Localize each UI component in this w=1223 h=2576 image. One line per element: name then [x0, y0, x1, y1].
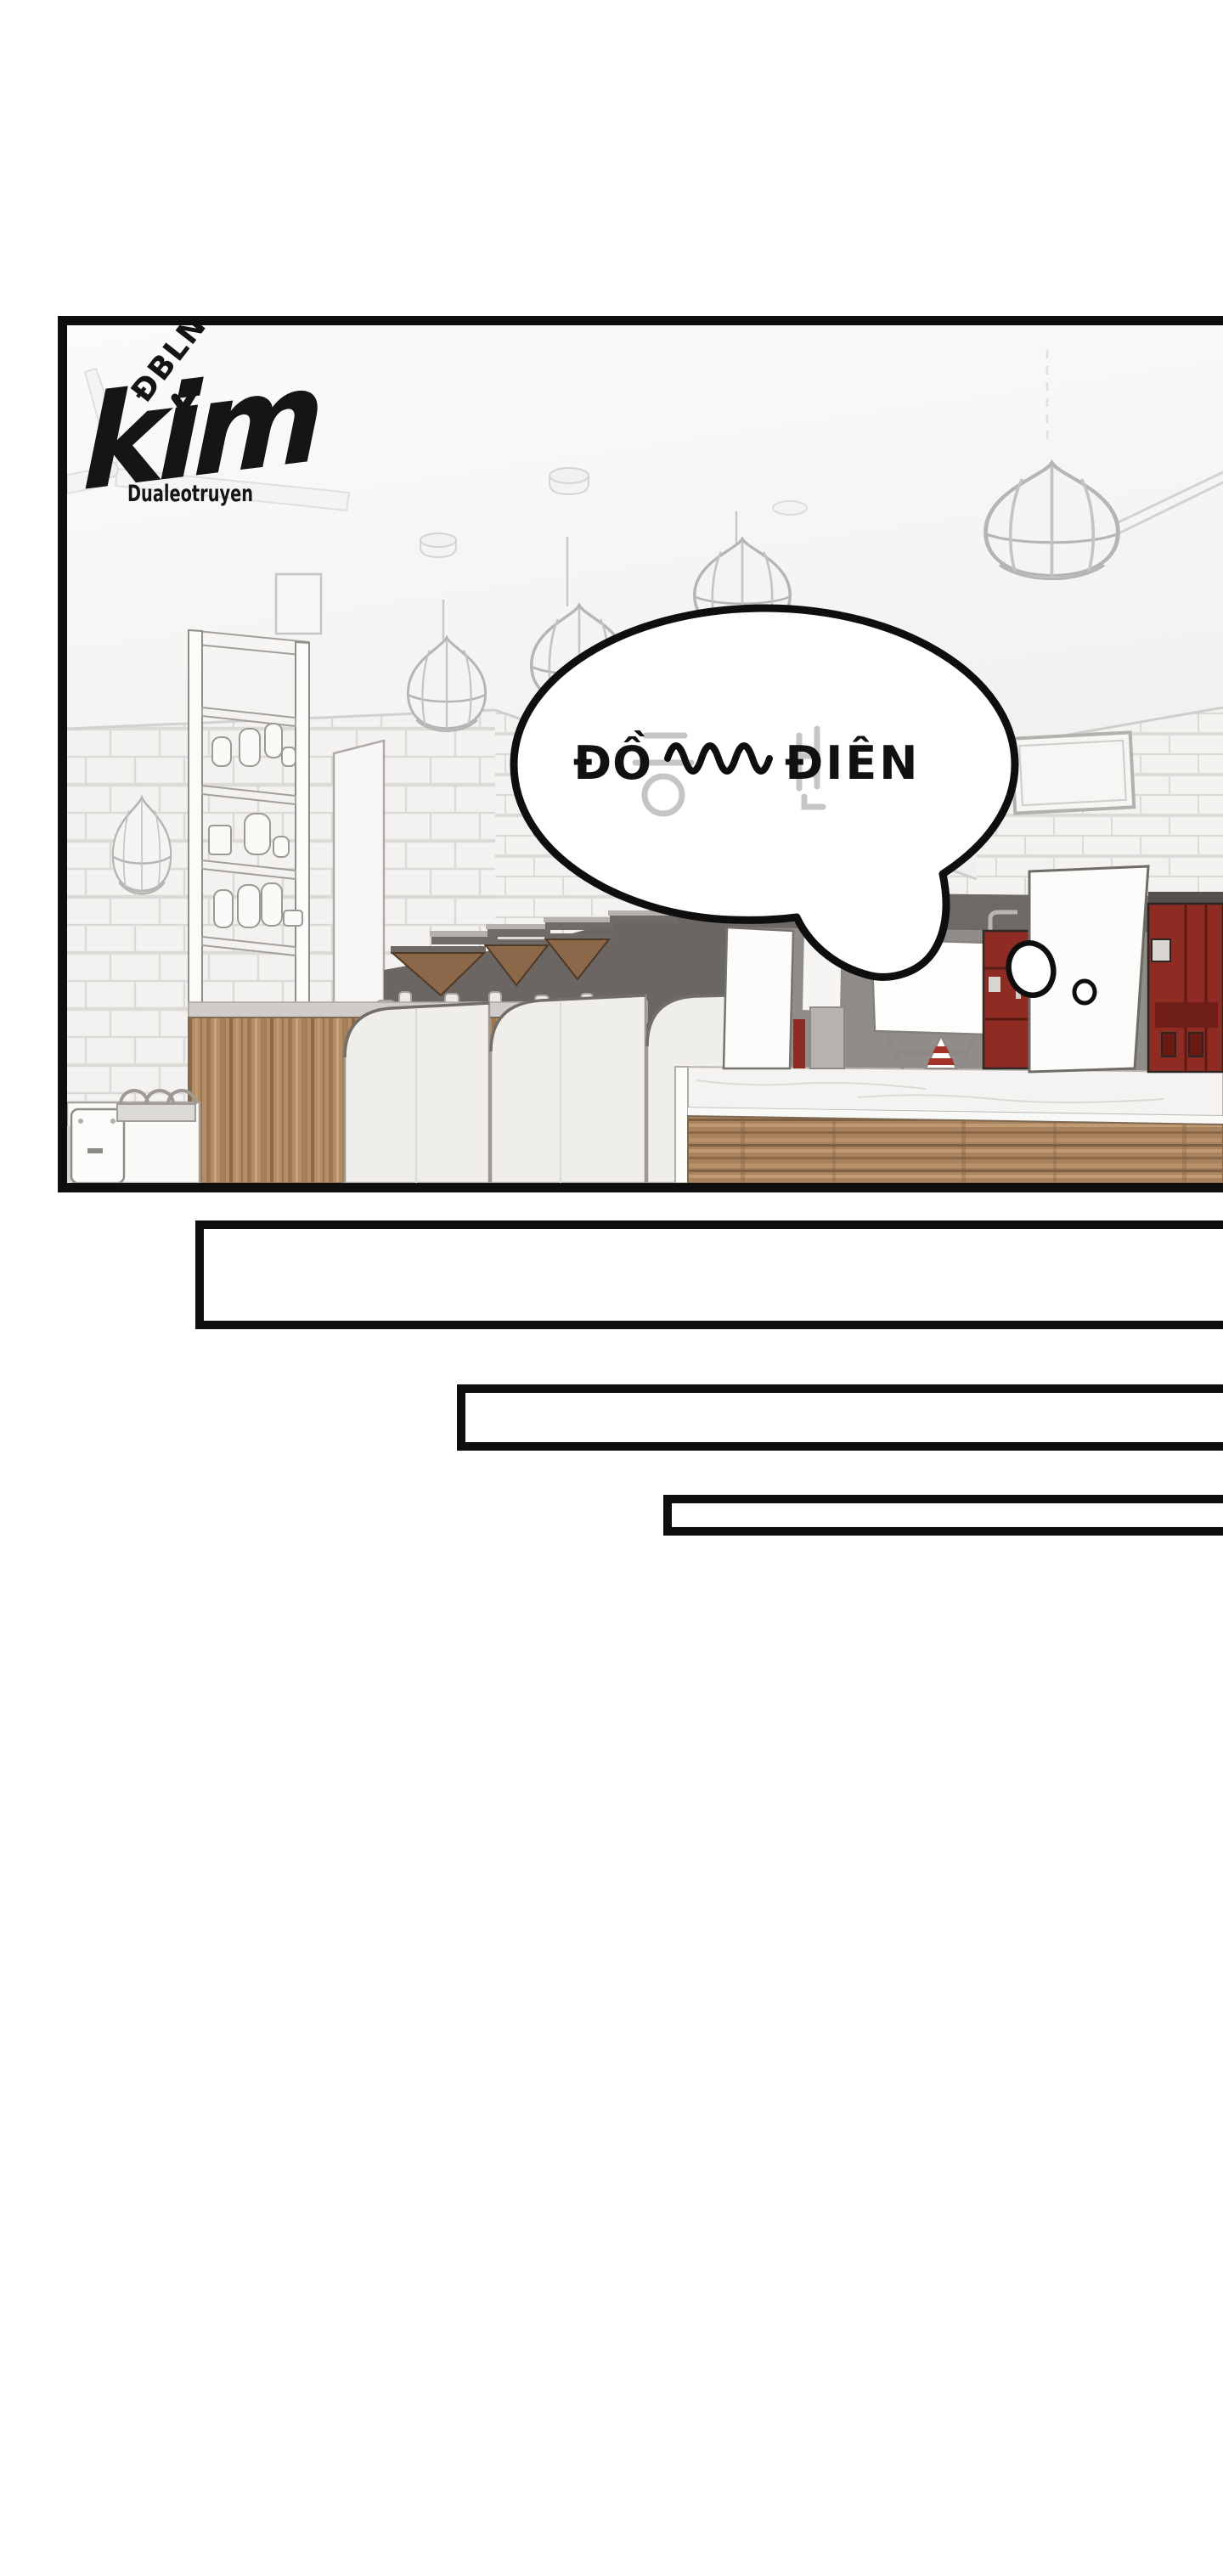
counter-wood-front — [688, 1116, 1223, 1183]
empty-speech-box-1 — [195, 1220, 1223, 1329]
counter-end-panel — [675, 1067, 688, 1183]
left-counter — [67, 1091, 200, 1183]
service-counter — [675, 1067, 1223, 1183]
cafe-scene-illustration: ĐỒ ĐIÊN ĐBLN kim Dualeotruyen — [67, 325, 1223, 1183]
menu-board-left — [724, 927, 793, 1068]
watermark-site: Dualeotruyen — [127, 481, 253, 507]
bubble-text-suffix: ĐIÊN — [785, 736, 920, 790]
thought-dot-small — [1074, 981, 1095, 1003]
bubble-text-prefix: ĐỒ — [573, 731, 652, 790]
comic-panel: ĐỒ ĐIÊN ĐBLN kim Dualeotruyen — [58, 316, 1223, 1192]
empty-speech-box-2 — [457, 1384, 1223, 1451]
red-machine-glimpse — [793, 1019, 805, 1068]
grey-box — [810, 1007, 844, 1068]
pastry-display-cases — [345, 995, 729, 1183]
empty-speech-box-3 — [663, 1495, 1223, 1536]
espresso-machine-red-2 — [1148, 892, 1223, 1072]
ceiling-duct — [276, 574, 321, 634]
comic-page: { "page": { "type": "webtoon comic page"… — [0, 0, 1223, 2576]
small-appliance — [71, 1109, 124, 1183]
wall-frame — [1012, 732, 1134, 813]
